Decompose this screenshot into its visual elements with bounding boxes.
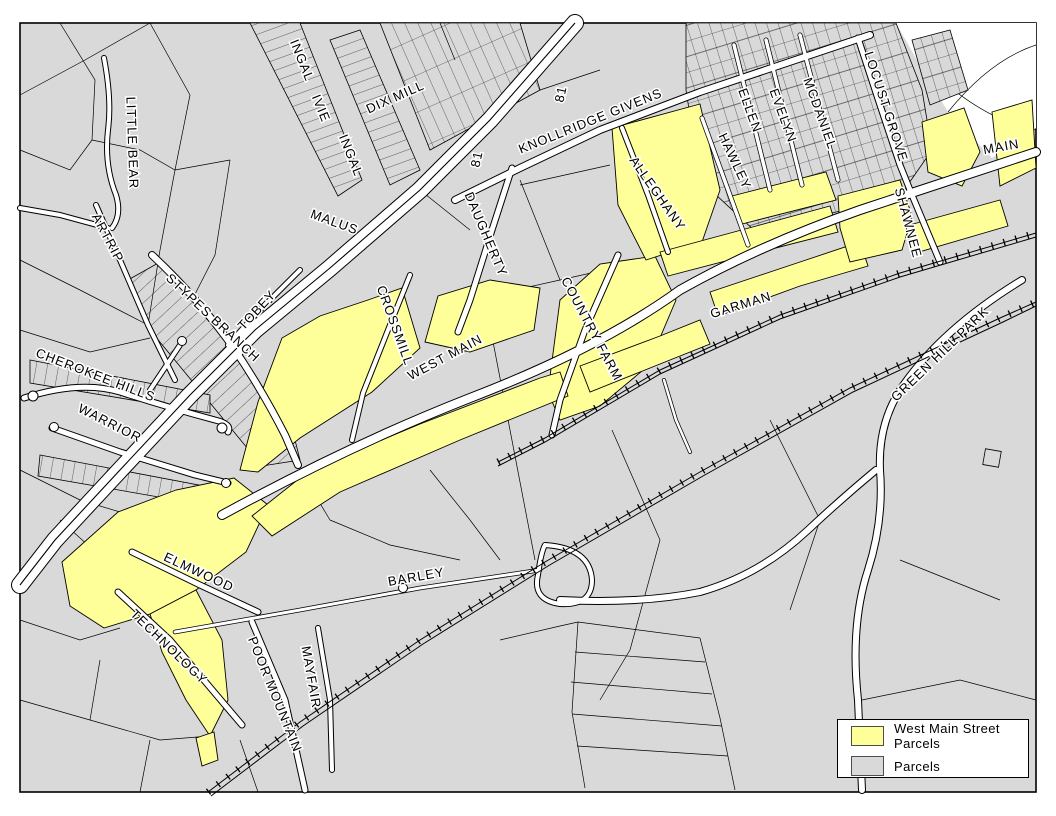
legend-label: West Main Street Parcels <box>894 721 1028 751</box>
parcel-map: LITTLE BEARARTRIPINGALIVIEINGALDIX MILL8… <box>0 0 1056 816</box>
legend-swatch-gray <box>851 756 884 776</box>
map-legend: West Main Street Parcels Parcels <box>837 719 1029 778</box>
legend-swatch-yellow <box>851 726 884 746</box>
legend-row-parcels: Parcels <box>838 756 1028 776</box>
legend-label: Parcels <box>894 759 940 774</box>
map-canvas: LITTLE BEARARTRIPINGALIVIEINGALDIX MILL8… <box>0 0 1056 816</box>
legend-row-west-main: West Main Street Parcels <box>838 721 1028 751</box>
